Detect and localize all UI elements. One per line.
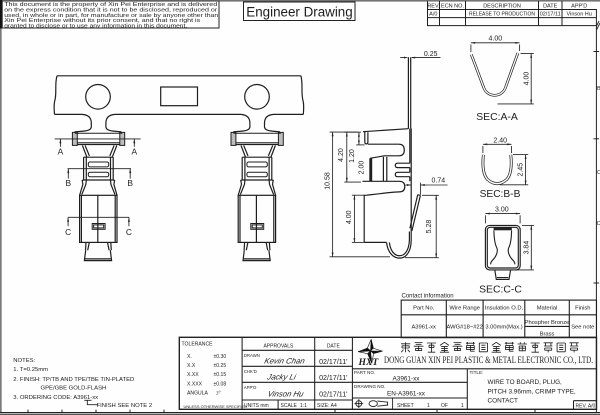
svg-text:APP'D: APP'D	[244, 385, 257, 390]
svg-text:APP'D: APP'D	[571, 3, 587, 9]
svg-text:CONTACT: CONTACT	[488, 398, 519, 405]
svg-text:5.28: 5.28	[426, 220, 433, 234]
svg-text:DONG GUAN XIN PEI PLASTIC & ME: DONG GUAN XIN PEI PLASTIC & METAL ELECTR…	[384, 356, 593, 366]
svg-text:EN-A3961-xx: EN-A3961-xx	[387, 390, 426, 397]
svg-text:APPROVALS: APPROVALS	[263, 343, 294, 349]
svg-text:OF: OF	[441, 403, 448, 409]
svg-text:3.84: 3.84	[523, 241, 530, 255]
svg-text:Wire Range: Wire Range	[449, 306, 480, 312]
svg-text:4.00: 4.00	[523, 72, 530, 86]
svg-text:1: 1	[427, 403, 430, 409]
svg-text:X.X: X.X	[187, 363, 196, 369]
svg-text:X.: X.	[187, 354, 192, 360]
svg-text:02/17/11': 02/17/11'	[319, 391, 347, 399]
svg-text:PART NO.: PART NO.	[354, 370, 375, 375]
svg-text:DATE: DATE	[543, 3, 558, 9]
svg-text:±0.08: ±0.08	[214, 381, 227, 387]
svg-text:NOTES:: NOTES:	[13, 358, 35, 364]
svg-text:HXT: HXT	[358, 357, 380, 368]
svg-text:X.XXX: X.XXX	[187, 381, 203, 387]
svg-text:FINISH SEE NOTE 2: FINISH SEE NOTE 2	[97, 403, 153, 409]
svg-text:0.74: 0.74	[431, 177, 445, 184]
svg-text:C: C	[65, 227, 71, 237]
svg-text:10.58: 10.58	[324, 172, 331, 190]
svg-text:02/17/11': 02/17/11'	[319, 374, 347, 382]
svg-text:±0.15: ±0.15	[214, 372, 227, 378]
svg-text:4.00: 4.00	[488, 35, 502, 42]
svg-text:Material: Material	[537, 306, 558, 312]
svg-text:Kevin Chan: Kevin Chan	[263, 357, 306, 366]
svg-text:UNITS mm: UNITS mm	[244, 403, 269, 409]
svg-text:SEC:A-A: SEC:A-A	[476, 112, 518, 123]
svg-text:Phospher Bronze: Phospher Bronze	[525, 320, 570, 326]
svg-text:B: B	[127, 178, 133, 188]
svg-text:REV.: REV.	[427, 3, 440, 9]
svg-text:SEC:B-B: SEC:B-B	[480, 189, 521, 200]
svg-text:SCALE: SCALE	[281, 403, 298, 409]
svg-text:granted to disclose or to use: granted to disclose or to use any inform…	[4, 23, 187, 29]
svg-text:±0.25: ±0.25	[214, 363, 227, 369]
svg-text:SEC:C-C: SEC:C-C	[479, 285, 522, 296]
svg-text:2.40: 2.40	[493, 137, 507, 144]
svg-text:TOLERANCE: TOLERANCE	[182, 342, 214, 348]
svg-text:X.XX: X.XX	[187, 372, 199, 378]
svg-text:C: C	[126, 227, 132, 237]
svg-text:3.00mm(Max.): 3.00mm(Max.)	[485, 325, 522, 331]
svg-text:2.45: 2.45	[517, 163, 524, 177]
svg-text:Finish: Finish	[575, 306, 590, 312]
svg-text:SHEET: SHEET	[397, 403, 414, 409]
svg-text:PITCH 3.96mm, CRIMP TYPE,: PITCH 3.96mm, CRIMP TYPE,	[488, 388, 576, 395]
svg-text:02/17/11: 02/17/11	[540, 12, 561, 18]
svg-text:GPE/GBE GOLD-FLASH: GPE/GBE GOLD-FLASH	[41, 385, 107, 391]
svg-text:1.20: 1.20	[349, 149, 356, 163]
svg-text:SIZE: A4: SIZE: A4	[317, 403, 337, 409]
svg-text:DRAWN: DRAWN	[244, 353, 260, 358]
svg-text:Part No.: Part No.	[413, 306, 435, 312]
svg-text:ANGULA: ANGULA	[187, 391, 209, 397]
svg-text:TITLE:: TITLE:	[470, 370, 484, 375]
svg-text:UNLESS OTHERWISE SPECIFIED: UNLESS OTHERWISE SPECIFIED	[184, 404, 248, 409]
svg-text:A: A	[58, 147, 64, 157]
svg-text:See note: See note	[571, 325, 594, 331]
svg-text:1:1: 1:1	[300, 403, 307, 409]
svg-text:Contact information: Contact information	[402, 293, 454, 299]
svg-text:REV. A/0: REV. A/0	[576, 403, 596, 409]
svg-text:3°: 3°	[216, 390, 221, 397]
svg-text:3.00: 3.00	[495, 206, 509, 213]
svg-text:RELEASE TO PRODUCTION: RELEASE TO PRODUCTION	[469, 12, 535, 18]
svg-text:Vinson Hu: Vinson Hu	[567, 12, 592, 18]
svg-text:2.00: 2.00	[359, 161, 366, 175]
svg-text:AWG#18~#22: AWG#18~#22	[447, 325, 483, 331]
svg-text:DESCRIPTION: DESCRIPTION	[483, 3, 521, 9]
svg-text:02/17/11': 02/17/11'	[319, 358, 347, 366]
svg-text:A: A	[132, 147, 138, 157]
svg-text:Jacky Li: Jacky Li	[265, 373, 297, 382]
svg-text:1: 1	[461, 403, 464, 409]
svg-text:A3961-xx: A3961-xx	[393, 375, 421, 382]
svg-text:Vinson Hu: Vinson Hu	[267, 390, 306, 399]
svg-text:DATE: DATE	[327, 343, 341, 349]
svg-text:4.00: 4.00	[346, 210, 353, 224]
svg-text:Brass: Brass	[540, 331, 555, 337]
svg-text:A/0: A/0	[429, 12, 437, 18]
svg-text:B: B	[66, 178, 72, 188]
svg-text:Engineer Drawing: Engineer Drawing	[246, 4, 352, 19]
svg-text:DRAWING NO.: DRAWING NO.	[354, 384, 385, 389]
svg-text:1. T=0.25mm: 1. T=0.25mm	[13, 367, 48, 373]
svg-text:±0.30: ±0.30	[214, 354, 227, 360]
svg-text:4.20: 4.20	[338, 148, 345, 162]
svg-text:CHK'D: CHK'D	[244, 369, 257, 374]
svg-text:WIRE TO BOARD, PLUG,: WIRE TO BOARD, PLUG,	[488, 379, 563, 386]
svg-text:Insulation O.D.: Insulation O.D.	[485, 306, 524, 312]
svg-text:0.25: 0.25	[424, 51, 438, 58]
svg-text:2. FINISH: TP/TB AND TPE/TBE T: 2. FINISH: TP/TB AND TPE/TBE TIN-PLATED	[13, 377, 134, 383]
svg-text:ECN NO.: ECN NO.	[441, 3, 464, 9]
svg-text:A3961-xx: A3961-xx	[411, 325, 436, 331]
